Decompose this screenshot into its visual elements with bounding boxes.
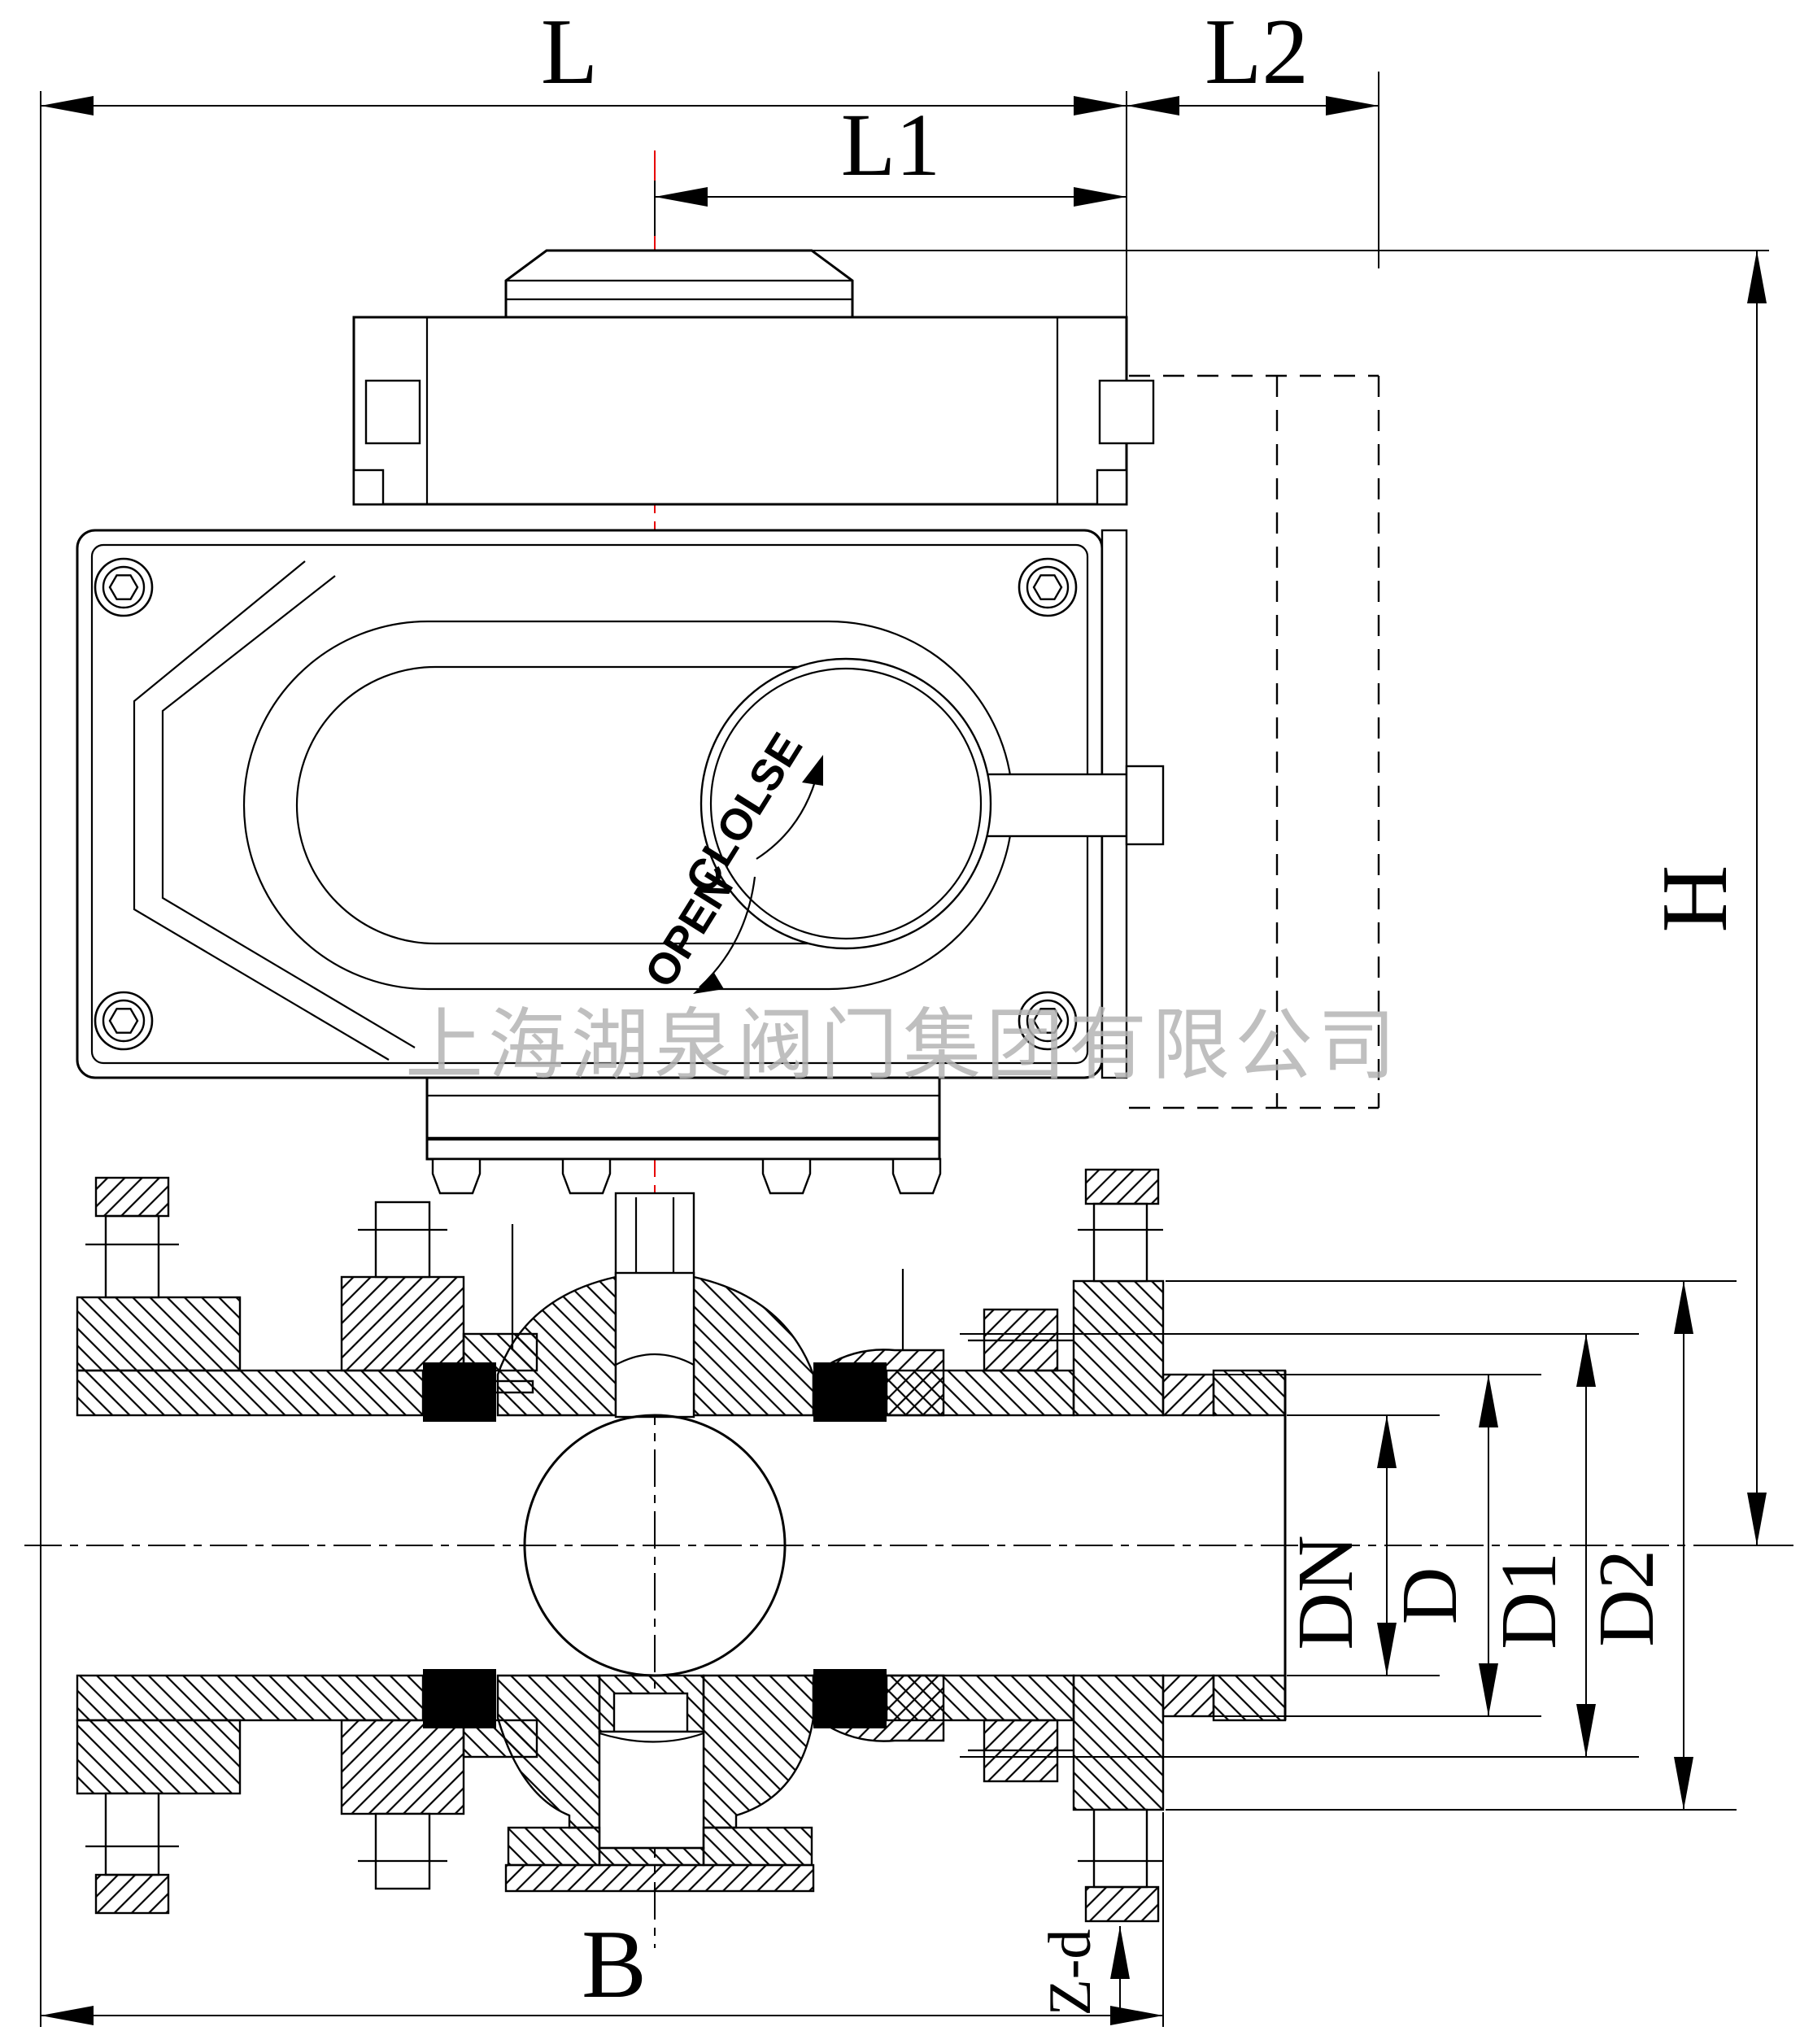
housing-bolt-top-right	[1019, 559, 1076, 616]
seat-retainer-step	[614, 1693, 687, 1732]
phantom-limit-switch-box	[1129, 376, 1379, 1108]
base-plate-bolts	[433, 1159, 940, 1193]
override-shaft	[980, 774, 1127, 836]
dim-label-B: B	[582, 1910, 647, 2018]
lower-body-drain	[498, 1676, 813, 1891]
valve-stem	[616, 1193, 694, 1275]
dim-label-D: D	[1386, 1567, 1474, 1625]
seat-ring-right-top	[813, 1362, 887, 1422]
pipe-wall-bottom-left	[77, 1676, 423, 1720]
dim-label-D1: D1	[1485, 1552, 1573, 1650]
actuator-bracket	[354, 317, 1127, 504]
valve-engineering-drawing: CLOLSE OPEN	[0, 0, 1813, 2044]
dim-label-L1: L1	[841, 95, 940, 194]
dim-label-Zd: Z-d	[1037, 1929, 1104, 2016]
dim-label-L: L	[541, 0, 598, 103]
bracket-tab-right	[1100, 381, 1153, 443]
housing-bolt-top-left	[95, 559, 152, 616]
drain-channel	[599, 1732, 704, 1848]
seat-ring-left-bottom	[423, 1669, 496, 1728]
company-watermark: 上海湖泉阀门集团有限公司	[405, 1000, 1401, 1091]
pipe-wall-top-left	[77, 1371, 423, 1415]
housing-bolt-bottom-left	[95, 992, 152, 1049]
dim-label-H: H	[1643, 865, 1746, 932]
dim-label-DN: DN	[1282, 1535, 1370, 1650]
bracket-tab-left	[366, 381, 420, 443]
stem-channel	[616, 1273, 694, 1417]
electric-actuator: CLOLSE OPEN	[77, 251, 1163, 1275]
pipe-wall-top-right	[1214, 1371, 1285, 1415]
bracket-foot-right	[1097, 470, 1127, 504]
override-shaft-end	[1127, 766, 1163, 844]
bracket-foot-left	[354, 470, 383, 504]
drain-flange	[506, 1865, 813, 1891]
actuator-top-cap	[506, 251, 852, 317]
pipe-wall-bottom-right	[1214, 1676, 1285, 1720]
dim-label-L2: L2	[1205, 0, 1309, 103]
left-flange-bottom	[77, 1720, 537, 1913]
left-flange-top	[77, 1178, 537, 1392]
dim-label-D2: D2	[1583, 1549, 1671, 1647]
seat-ring-left-top	[423, 1362, 496, 1422]
